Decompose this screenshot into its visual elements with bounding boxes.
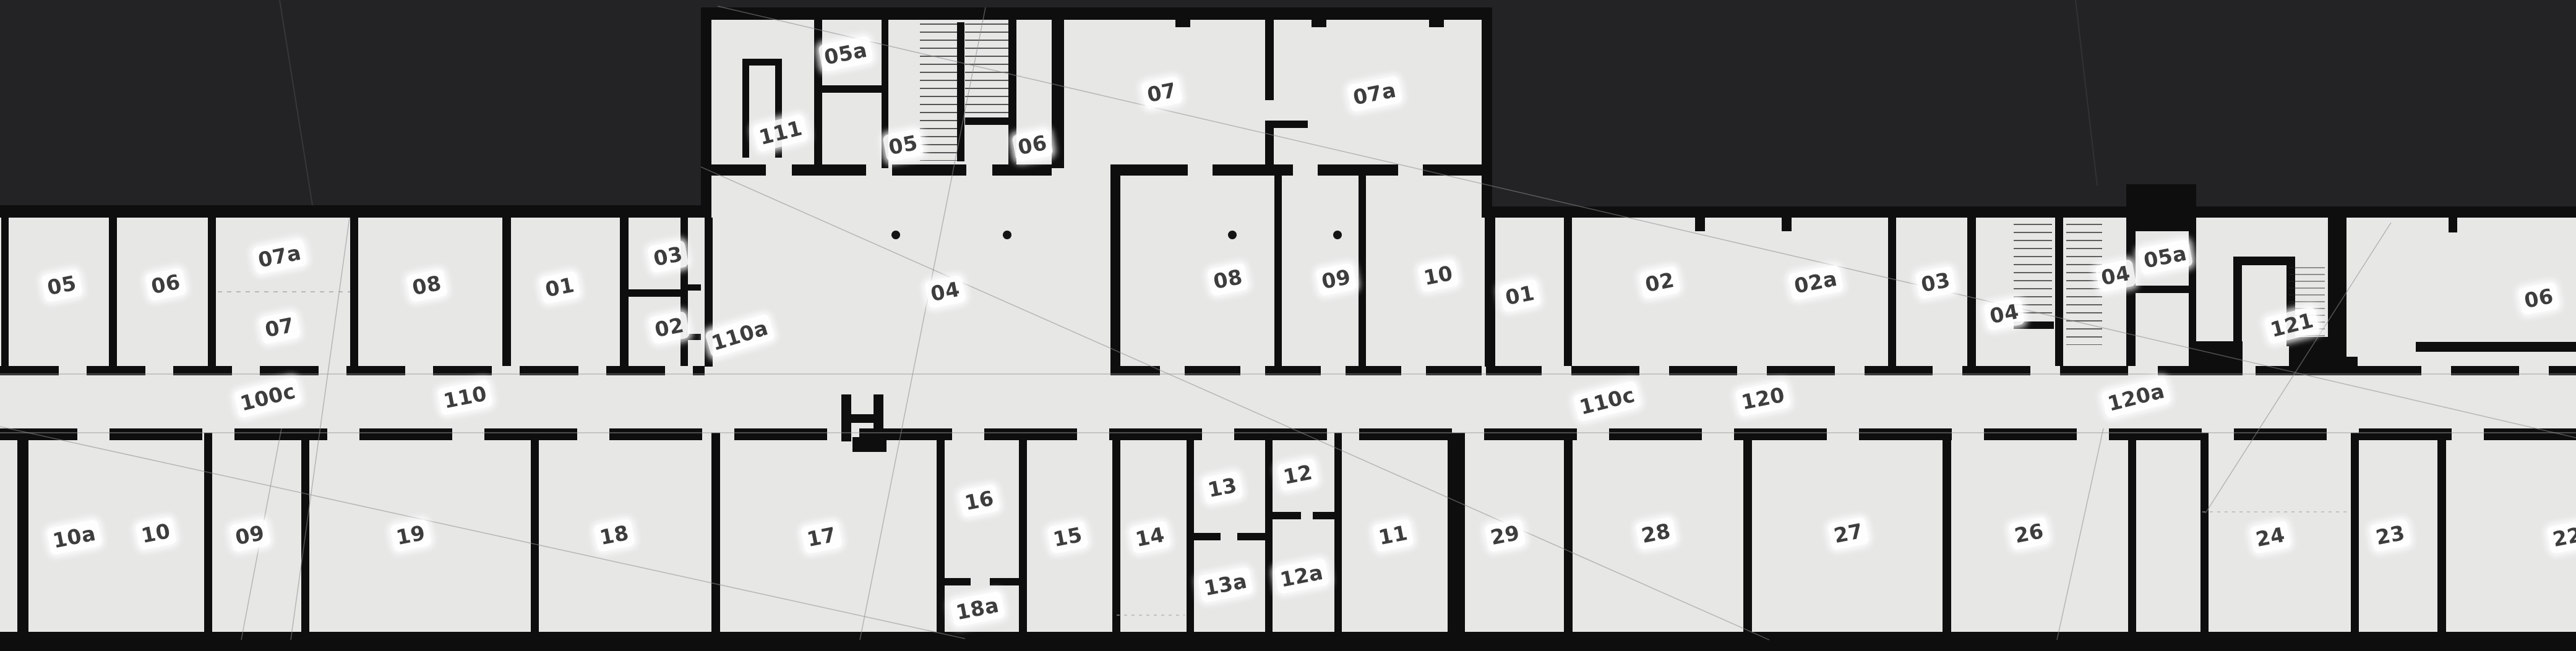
wall (1564, 218, 1572, 366)
wall (1743, 433, 1752, 632)
wall (701, 7, 1492, 20)
wall (2126, 184, 2196, 231)
wall (2200, 433, 2209, 632)
wall (350, 218, 358, 366)
wall (1187, 533, 1221, 540)
wall (822, 85, 882, 93)
wall (1312, 20, 1326, 27)
column-dot (1333, 231, 1342, 239)
wall-dashed (1110, 366, 1492, 375)
wall (2128, 433, 2136, 632)
wall (742, 59, 749, 158)
wall (680, 284, 701, 291)
wall (1052, 20, 1064, 168)
wall (1, 218, 9, 366)
wall (2449, 218, 2457, 232)
wall (2351, 433, 2359, 632)
wall (2136, 286, 2196, 293)
stair-hatch (965, 23, 1008, 116)
wall (1359, 176, 1366, 367)
wall (1888, 218, 1896, 366)
wall (0, 632, 2576, 651)
wall-dashed (0, 366, 705, 375)
wall-dashed (0, 428, 2576, 440)
wall (1265, 20, 1274, 100)
wall (627, 289, 688, 297)
wall (814, 20, 822, 168)
wall (502, 218, 511, 366)
wall (1429, 20, 1444, 27)
wall (1492, 206, 2576, 218)
wall (2233, 257, 2295, 265)
wall (1334, 433, 1342, 632)
wall-dashed (701, 164, 1052, 176)
wall (1175, 20, 1190, 27)
wall (2126, 230, 2136, 366)
wall (1265, 121, 1274, 167)
wall (937, 433, 945, 632)
reference-line (2076, 0, 2097, 185)
wall (1265, 433, 1273, 632)
reference-line (280, 0, 312, 205)
wall (2416, 342, 2576, 352)
wall-dashed (1492, 366, 2576, 375)
wall (204, 433, 212, 632)
wall (0, 205, 709, 218)
wall (957, 22, 964, 161)
wall (301, 433, 309, 632)
wall (1564, 433, 1573, 632)
wall (1943, 433, 1951, 632)
column-dot (891, 231, 900, 239)
wall (1274, 176, 1282, 367)
wall (1237, 533, 1265, 540)
wall (937, 578, 971, 585)
wall (208, 218, 216, 366)
wall (2055, 218, 2063, 366)
wall (846, 414, 878, 423)
wall (1274, 121, 1308, 128)
wall (1112, 433, 1120, 632)
wall (1967, 218, 1976, 366)
wall (1485, 218, 1495, 367)
wall (1110, 176, 1120, 367)
wall (1313, 512, 1334, 519)
wall (701, 7, 711, 218)
wall (1482, 7, 1492, 218)
wall (2328, 218, 2346, 375)
column-dot (1003, 231, 1011, 239)
stair-hatch (920, 23, 957, 161)
floor-plan-canvas: 050607a0708010302110a11105a05060707a0408… (0, 0, 2576, 651)
wall (1187, 433, 1194, 632)
wall (2233, 257, 2242, 346)
wall (1782, 218, 1792, 231)
wall (1265, 512, 1301, 519)
wall (1448, 433, 1465, 632)
wall (1019, 433, 1027, 632)
stair-hatch (2066, 224, 2102, 345)
wall (2437, 433, 2446, 632)
wall (531, 433, 539, 632)
wall (17, 433, 28, 632)
wall (1695, 218, 1705, 231)
wall-dashed (1110, 164, 1492, 176)
wall (990, 578, 1019, 585)
wall (965, 117, 1008, 125)
column-dot (1228, 231, 1237, 239)
wall (109, 218, 117, 366)
wall (711, 433, 720, 632)
